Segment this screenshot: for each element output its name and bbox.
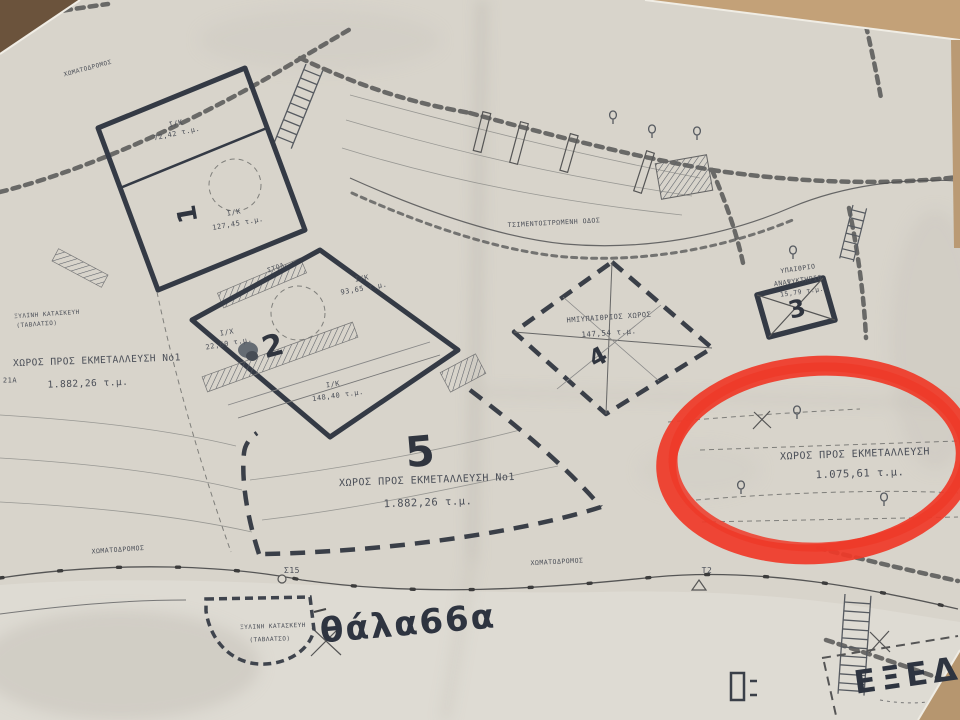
- marker-t2-label: Τ2: [702, 567, 713, 575]
- survey-point-21a-label: 21Α: [3, 378, 17, 385]
- area5-number: 5: [404, 430, 437, 474]
- site-plan-photo: ΧΩΜΑΤΟΔΡΟΜΟΣ Ι/Κ 72,42 τ.μ. 1 Ι/Κ 127,45…: [0, 0, 960, 720]
- survey-point-s15: [278, 575, 286, 583]
- marker-s15-label: Σ15: [284, 567, 300, 575]
